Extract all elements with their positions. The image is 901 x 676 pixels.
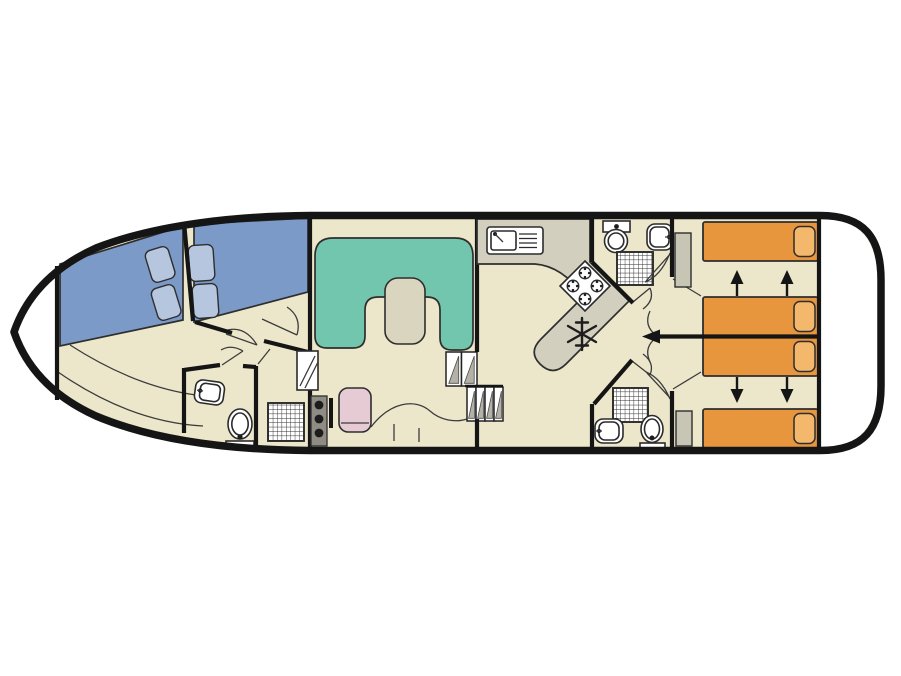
saloon-table: [385, 278, 425, 344]
bow-wardrobe: [297, 351, 318, 390]
aft-deck: [819, 219, 878, 447]
wardrobe-bottom: [676, 411, 692, 446]
toilet-dot: [614, 224, 619, 229]
shower-icon: [613, 388, 648, 422]
floorplan-canvas: [0, 0, 901, 676]
gauge-icon-3: [315, 429, 324, 438]
bow-pillow-4: [192, 283, 219, 319]
bow-pillow-3: [188, 244, 215, 282]
toilet-bowl: [608, 233, 624, 249]
toilet-bowl: [232, 413, 248, 435]
toilet-dot: [650, 436, 655, 441]
gauge-icon-2: [315, 415, 324, 424]
sink-basin: [199, 383, 221, 403]
steering-wheel-icon: [329, 398, 333, 428]
bed-pillow-4: [794, 414, 815, 444]
galley-sink: [487, 227, 543, 254]
shower-icon: [268, 403, 304, 441]
wardrobe-top: [675, 233, 691, 287]
gauge-icon-1: [315, 401, 324, 410]
toilet-dot: [237, 434, 242, 439]
bed-pillow-1: [794, 227, 815, 257]
bed-pillow-2: [794, 302, 815, 332]
boat-deck-plan: [0, 0, 901, 676]
helm-seat: [339, 388, 371, 432]
bed-pillow-3: [794, 342, 815, 372]
